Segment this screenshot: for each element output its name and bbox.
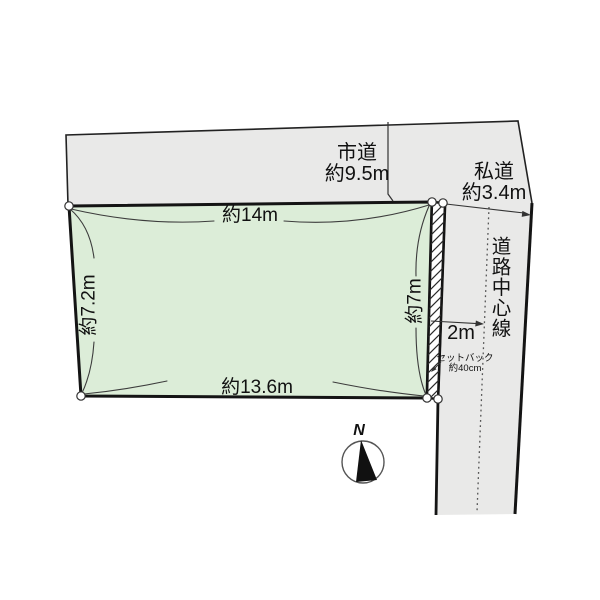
compass-north-label: N bbox=[342, 422, 376, 440]
city-road-width: 約9.5m bbox=[293, 164, 421, 185]
private-road-label: 私道 約3.4m bbox=[434, 162, 554, 204]
city-road-label: 市道 約9.5m bbox=[293, 143, 421, 185]
centerline-offset-label: 2m bbox=[433, 322, 489, 345]
parcel-area bbox=[69, 202, 432, 398]
corner-marker-bottom-left bbox=[77, 392, 85, 400]
setback-note-line2: 約40cm bbox=[435, 364, 495, 374]
parcel-dim-right: 約7m bbox=[406, 278, 425, 323]
parcel-dim-top: 約14m bbox=[200, 206, 300, 225]
road-centerline-label: 道路中心線 bbox=[488, 236, 510, 339]
setback-note: セットバック 約40cm bbox=[435, 354, 495, 374]
city-road-name: 市道 bbox=[293, 143, 421, 164]
land-plot-diagram: 市道 約9.5m 私道 約3.4m 道路中心線 2m 約14m 約13.6m 約… bbox=[0, 0, 600, 600]
private-road-width: 約3.4m bbox=[434, 183, 554, 204]
corner-marker-bottom-right-inner bbox=[423, 394, 431, 402]
corner-marker-bottom-right-outer bbox=[434, 395, 442, 403]
parcel-dim-left: 約7.2m bbox=[80, 274, 99, 335]
private-road-name: 私道 bbox=[434, 162, 554, 183]
parcel-dim-bottom: 約13.6m bbox=[197, 378, 317, 397]
corner-marker-top-left bbox=[65, 202, 73, 210]
